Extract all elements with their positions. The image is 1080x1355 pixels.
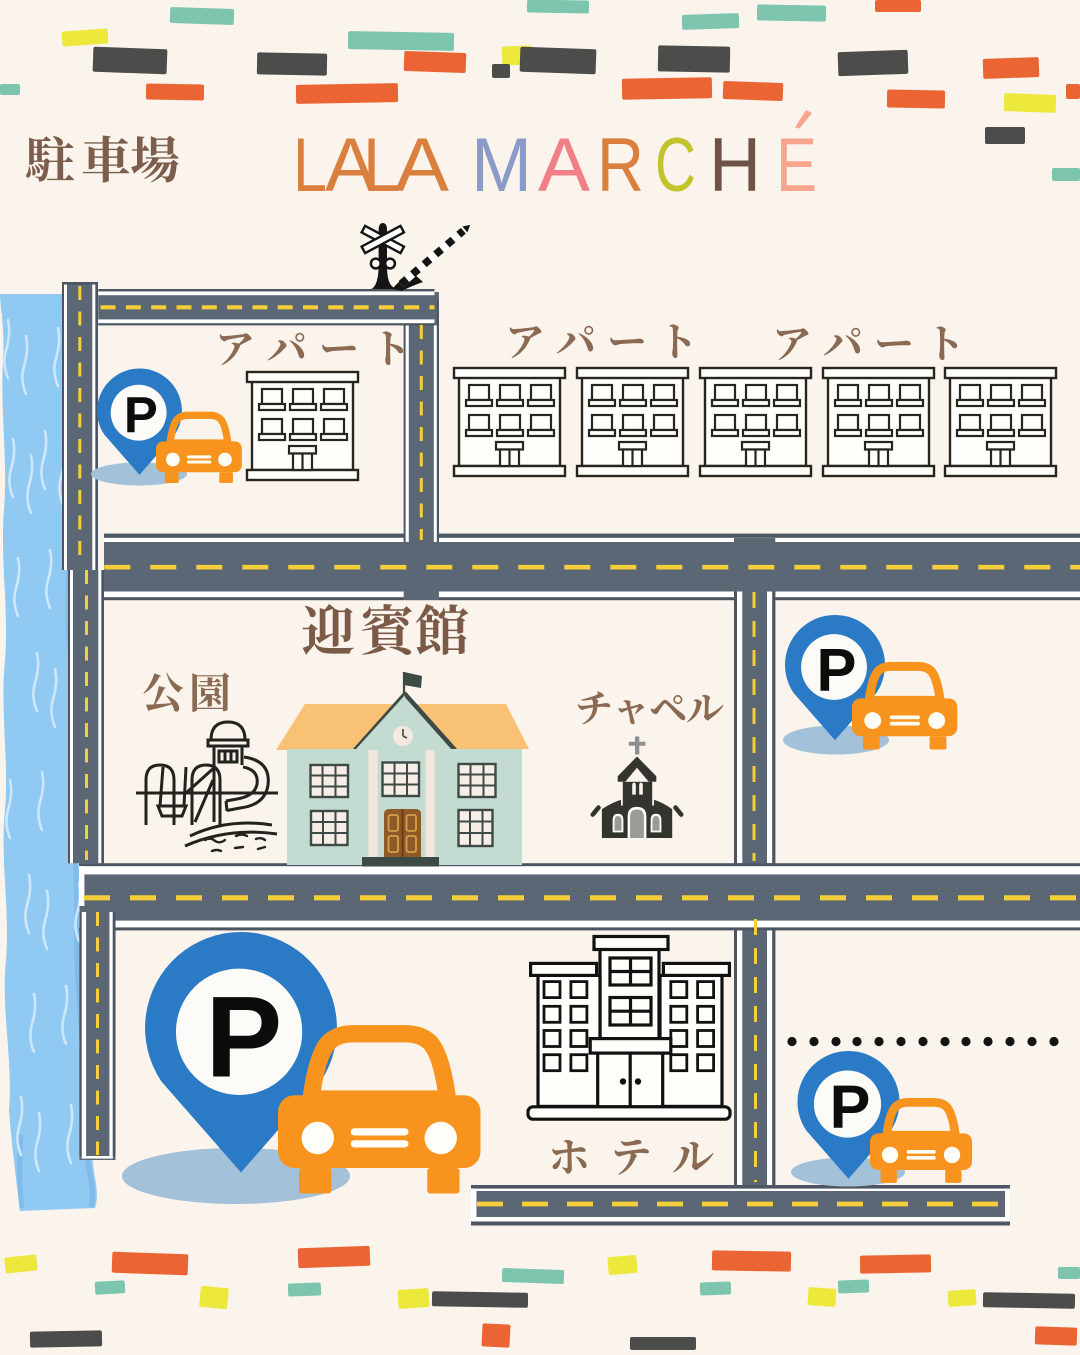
svg-text:E: E xyxy=(776,123,817,208)
svg-text:C: C xyxy=(655,123,696,208)
svg-text:R: R xyxy=(597,123,644,208)
svg-text:H: H xyxy=(709,123,761,208)
svg-text:A: A xyxy=(538,123,590,208)
svg-text:L: L xyxy=(293,123,327,208)
svg-text:A: A xyxy=(395,123,449,208)
svg-text:M: M xyxy=(471,123,532,208)
